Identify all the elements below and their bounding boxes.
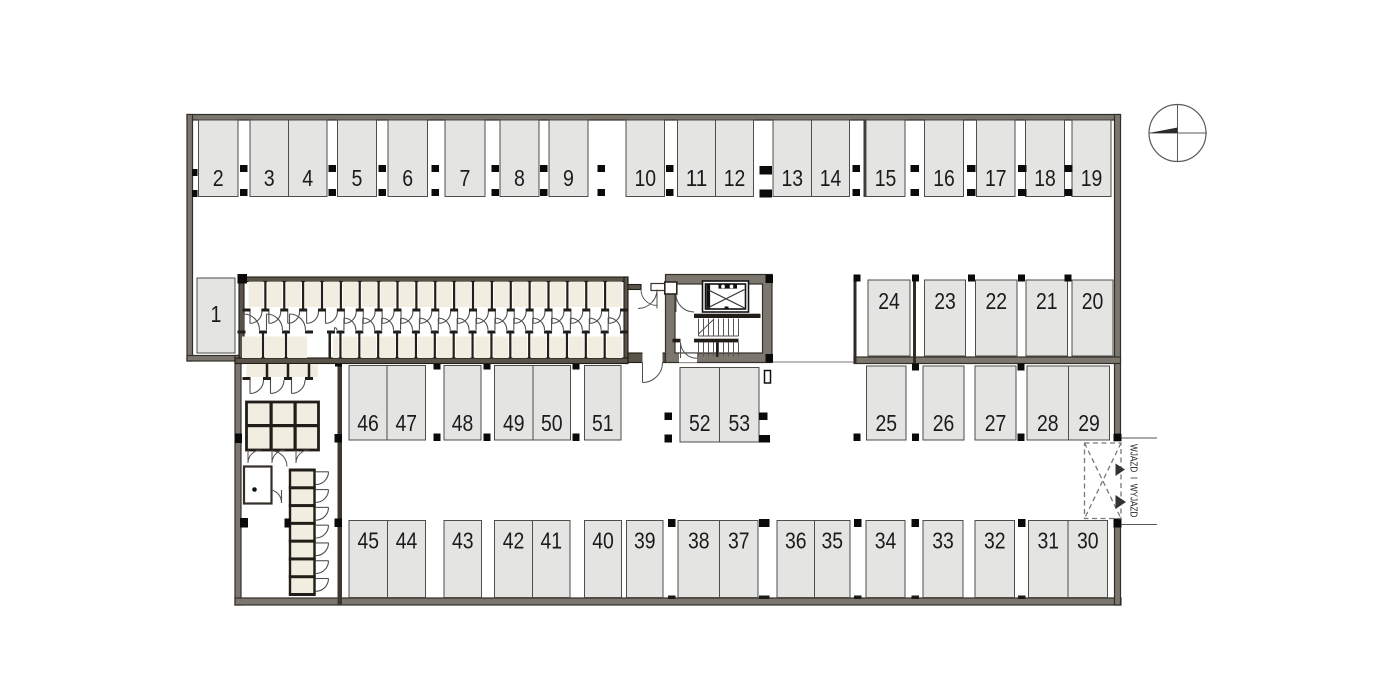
svg-text:11: 11: [686, 165, 708, 191]
svg-text:43: 43: [452, 528, 474, 554]
svg-text:20: 20: [1082, 288, 1104, 314]
svg-text:42: 42: [503, 528, 525, 554]
svg-text:47: 47: [395, 410, 417, 436]
svg-text:17: 17: [985, 165, 1007, 191]
svg-text:1: 1: [211, 301, 222, 327]
svg-text:45: 45: [357, 528, 379, 554]
svg-text:46: 46: [357, 410, 379, 436]
svg-text:49: 49: [503, 410, 525, 436]
svg-text:50: 50: [541, 410, 563, 436]
svg-text:40: 40: [592, 528, 614, 554]
svg-text:48: 48: [452, 410, 474, 436]
svg-text:41: 41: [540, 528, 562, 554]
svg-text:18: 18: [1034, 165, 1056, 191]
svg-text:26: 26: [933, 410, 955, 436]
svg-text:3: 3: [264, 165, 275, 191]
svg-text:8: 8: [514, 165, 525, 191]
svg-text:36: 36: [785, 528, 807, 554]
svg-text:51: 51: [592, 410, 614, 436]
svg-text:9: 9: [563, 165, 574, 191]
svg-text:29: 29: [1078, 410, 1100, 436]
svg-text:38: 38: [688, 528, 710, 554]
svg-text:44: 44: [396, 528, 418, 554]
svg-text:30: 30: [1077, 528, 1099, 554]
svg-text:34: 34: [875, 528, 897, 554]
svg-text:13: 13: [781, 165, 803, 191]
svg-text:14: 14: [820, 165, 842, 191]
svg-text:39: 39: [634, 528, 656, 554]
svg-text:10: 10: [634, 165, 656, 191]
svg-text:27: 27: [985, 410, 1007, 436]
svg-text:16: 16: [933, 165, 955, 191]
svg-text:23: 23: [934, 288, 956, 314]
svg-text:15: 15: [875, 165, 897, 191]
svg-text:37: 37: [728, 528, 750, 554]
svg-text:6: 6: [402, 165, 413, 191]
svg-text:31: 31: [1037, 528, 1059, 554]
svg-text:22: 22: [985, 288, 1007, 314]
svg-text:28: 28: [1037, 410, 1059, 436]
svg-text:25: 25: [875, 410, 897, 436]
svg-text:35: 35: [821, 528, 843, 554]
svg-text:19: 19: [1081, 165, 1103, 191]
svg-text:24: 24: [878, 288, 900, 314]
svg-text:33: 33: [932, 528, 954, 554]
svg-text:53: 53: [728, 410, 750, 436]
svg-text:12: 12: [724, 165, 746, 191]
svg-text:7: 7: [460, 165, 471, 191]
svg-text:5: 5: [352, 165, 363, 191]
svg-text:WJAZD I WYJAZD: WJAZD I WYJAZD: [1128, 444, 1140, 518]
svg-text:21: 21: [1036, 288, 1058, 314]
svg-text:4: 4: [302, 165, 313, 191]
svg-text:32: 32: [984, 528, 1006, 554]
svg-text:52: 52: [689, 410, 711, 436]
svg-text:2: 2: [213, 165, 224, 191]
